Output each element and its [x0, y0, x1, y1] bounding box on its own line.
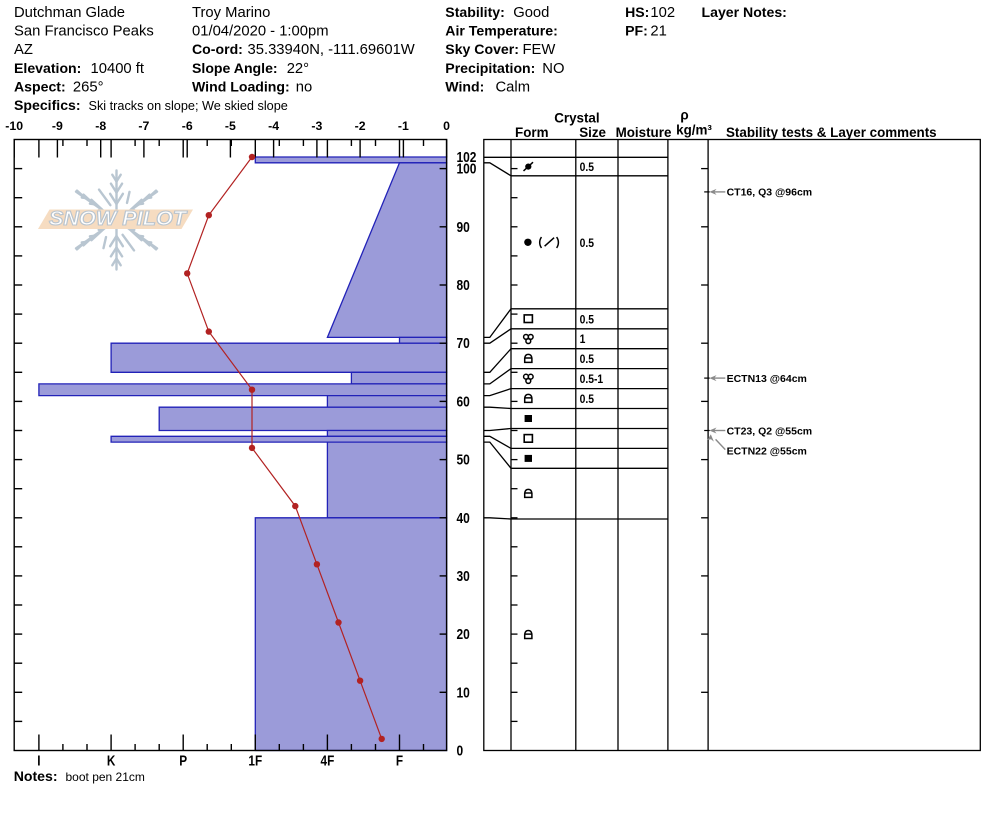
svg-text:Air Temperature:: Air Temperature: [445, 23, 558, 39]
svg-text:Stability:: Stability: [445, 4, 505, 20]
svg-text:ρ: ρ [680, 108, 688, 123]
svg-text:ECTN22 @55cm: ECTN22 @55cm [727, 446, 807, 458]
svg-text:0: 0 [443, 119, 450, 133]
svg-text:0.5: 0.5 [580, 162, 594, 175]
svg-text:0.5-1: 0.5-1 [580, 374, 604, 387]
svg-text:Crystal: Crystal [554, 110, 599, 125]
svg-text:SNOW PILOT: SNOW PILOT [49, 208, 188, 230]
svg-text:NO: NO [542, 61, 564, 77]
svg-text:Dutchman Glade: Dutchman Glade [14, 5, 125, 21]
svg-text:40: 40 [457, 510, 470, 526]
svg-text:102: 102 [650, 5, 675, 21]
svg-text:PF:: PF: [625, 23, 648, 39]
svg-text:P: P [179, 752, 187, 769]
svg-text:CT16, Q3 @96cm: CT16, Q3 @96cm [727, 187, 813, 199]
svg-text:Wind Loading:: Wind Loading: [192, 79, 290, 95]
svg-text:20: 20 [457, 626, 470, 642]
svg-text:FEW: FEW [523, 42, 556, 58]
svg-text:kg/m³: kg/m³ [676, 123, 712, 138]
svg-text:Size: Size [579, 125, 606, 140]
svg-text:Troy Marino: Troy Marino [192, 5, 270, 21]
svg-text:-4: -4 [268, 119, 279, 133]
svg-text:San Francisco Peaks: San Francisco Peaks [14, 24, 154, 40]
svg-text:I: I [37, 752, 40, 769]
svg-text:Moisture: Moisture [616, 125, 672, 140]
svg-text:Elevation:: Elevation: [14, 60, 81, 76]
svg-text:F: F [396, 752, 403, 769]
svg-text:Layer Notes:: Layer Notes: [702, 4, 787, 20]
svg-text:-9: -9 [52, 119, 63, 133]
svg-text:Calm: Calm [496, 80, 531, 96]
svg-text:ECTN13 @64cm: ECTN13 @64cm [727, 373, 807, 385]
svg-text:70: 70 [457, 335, 470, 351]
svg-text:21: 21 [650, 24, 666, 40]
svg-text:Sky Cover:: Sky Cover: [445, 41, 519, 57]
svg-text:50: 50 [457, 451, 470, 467]
svg-text:4F: 4F [321, 752, 335, 769]
svg-text:0.5: 0.5 [580, 237, 594, 250]
svg-text:22°: 22° [287, 61, 309, 77]
svg-text:Ski tracks on slope; We skied: Ski tracks on slope; We skied slope [89, 99, 288, 113]
svg-text:0.5: 0.5 [580, 394, 594, 407]
svg-text:-3: -3 [311, 119, 322, 133]
svg-text:-6: -6 [182, 119, 193, 133]
svg-text:265°: 265° [73, 80, 104, 96]
svg-text:-5: -5 [225, 119, 236, 133]
svg-text:-8: -8 [95, 119, 106, 133]
svg-text:10: 10 [457, 684, 470, 700]
svg-text:-1: -1 [398, 119, 409, 133]
svg-text:Precipitation:: Precipitation: [445, 60, 535, 76]
svg-text:01/04/2020 - 1:00pm: 01/04/2020 - 1:00pm [192, 24, 329, 40]
svg-text:0.5: 0.5 [580, 314, 594, 327]
svg-text:-2: -2 [355, 119, 366, 133]
svg-text:60: 60 [457, 393, 470, 409]
svg-text:Stability tests & Layer commen: Stability tests & Layer comments [726, 125, 937, 140]
svg-text:0.5: 0.5 [580, 354, 594, 367]
svg-text:35.33940N, -111.69601W: 35.33940N, -111.69601W [248, 42, 415, 58]
svg-text:K: K [107, 752, 116, 769]
svg-text:1F: 1F [248, 752, 262, 769]
svg-text:100: 100 [457, 160, 477, 176]
svg-text:90: 90 [457, 219, 470, 235]
svg-text:boot pen 21cm: boot pen 21cm [66, 770, 145, 784]
svg-text:-7: -7 [138, 119, 149, 133]
svg-text:CT23, Q2 @55cm: CT23, Q2 @55cm [727, 425, 813, 437]
svg-text:-10: -10 [5, 119, 23, 133]
svg-text:Notes:: Notes: [14, 768, 58, 784]
svg-text:0: 0 [457, 742, 464, 758]
svg-text:30: 30 [457, 568, 470, 584]
svg-text:Aspect:: Aspect: [14, 79, 66, 95]
svg-text:1: 1 [580, 334, 586, 347]
svg-text:AZ: AZ [14, 42, 33, 58]
svg-text:Wind:: Wind: [445, 79, 484, 95]
svg-text:Good: Good [513, 5, 549, 21]
svg-text:HS:: HS: [625, 4, 649, 20]
svg-text:Form: Form [515, 125, 549, 140]
svg-text:Co-ord:: Co-ord: [192, 41, 243, 57]
svg-text:no: no [296, 80, 312, 96]
svg-text:10400 ft: 10400 ft [91, 61, 144, 77]
svg-text:Slope Angle:: Slope Angle: [192, 60, 278, 76]
svg-text:80: 80 [457, 277, 470, 293]
svg-text:Specifics:: Specifics: [14, 97, 81, 113]
